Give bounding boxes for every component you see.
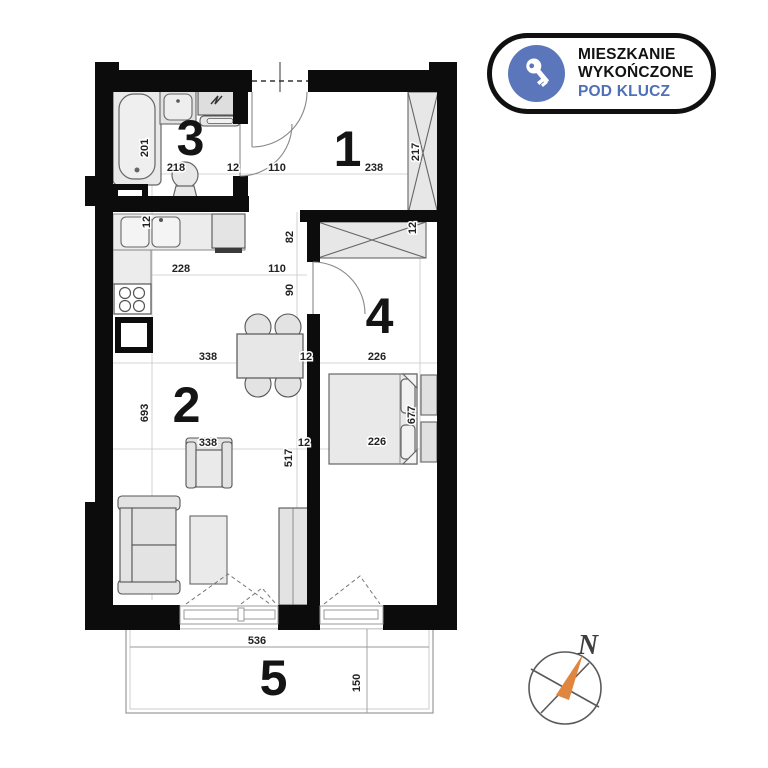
- dim-12-mid: 12: [300, 351, 312, 363]
- dim-12-wardrobe: 12: [407, 222, 419, 234]
- dim-12-low: 12: [298, 437, 310, 449]
- dim-110-hall: 110: [268, 162, 286, 174]
- room-label-2: 2: [173, 377, 200, 433]
- bathtub: [113, 88, 161, 185]
- fridge: [212, 214, 245, 253]
- badge-line1: MIESZKANIE: [578, 46, 694, 64]
- badge-line3: POD KLUCZ: [578, 83, 694, 101]
- floor-plan-drawing: 218 12 110 238 228 110 338 12 226 338 12…: [0, 0, 768, 768]
- dim-238: 238: [365, 162, 383, 174]
- compass: N: [529, 630, 601, 724]
- dim-82: 82: [284, 231, 296, 243]
- dim-228: 228: [172, 263, 190, 275]
- dim-110-kitchen: 110: [268, 263, 286, 275]
- bedroom-balcony-door: [320, 576, 383, 624]
- bed: [329, 374, 417, 464]
- kitchen-shaft: [118, 320, 150, 350]
- sofa: [118, 496, 180, 594]
- coffee-table: [190, 516, 227, 584]
- badge-text: MIESZKANIE WYKOŃCZONE POD KLUCZ: [578, 46, 694, 100]
- dim-150: 150: [351, 674, 363, 692]
- dim-338-chair: 338: [199, 437, 217, 449]
- badge-line2: WYKOŃCZONE: [578, 64, 694, 82]
- dim-677: 677: [406, 406, 418, 424]
- dim-217: 217: [410, 143, 422, 161]
- dim-338-table: 338: [199, 351, 217, 363]
- dim-12-hall: 12: [227, 162, 239, 174]
- room-label-1: 1: [334, 121, 361, 177]
- floor-plan-page: 218 12 110 238 228 110 338 12 226 338 12…: [0, 0, 768, 768]
- dim-226-bed: 226: [368, 436, 386, 448]
- compass-north-label: N: [577, 630, 600, 661]
- nightstands: [421, 375, 437, 462]
- dim-536: 536: [248, 635, 266, 647]
- bedroom-door: [313, 262, 365, 314]
- room-label-3: 3: [177, 110, 204, 166]
- dining-table: [237, 334, 303, 378]
- stove: [114, 284, 151, 314]
- dim-201: 201: [139, 139, 151, 157]
- tv-cabinet: [279, 508, 308, 605]
- key-icon: [508, 45, 565, 102]
- room-label-4: 4: [366, 288, 394, 344]
- dim-693: 693: [139, 404, 151, 422]
- dim-517: 517: [283, 449, 295, 467]
- dim-226-top: 226: [368, 351, 386, 363]
- dim-90: 90: [284, 284, 296, 296]
- entry-door: [252, 62, 308, 147]
- turnkey-badge: MIESZKANIE WYKOŃCZONE POD KLUCZ: [487, 33, 716, 114]
- room-label-5: 5: [260, 650, 287, 706]
- dim-12-sink: 12: [141, 216, 153, 228]
